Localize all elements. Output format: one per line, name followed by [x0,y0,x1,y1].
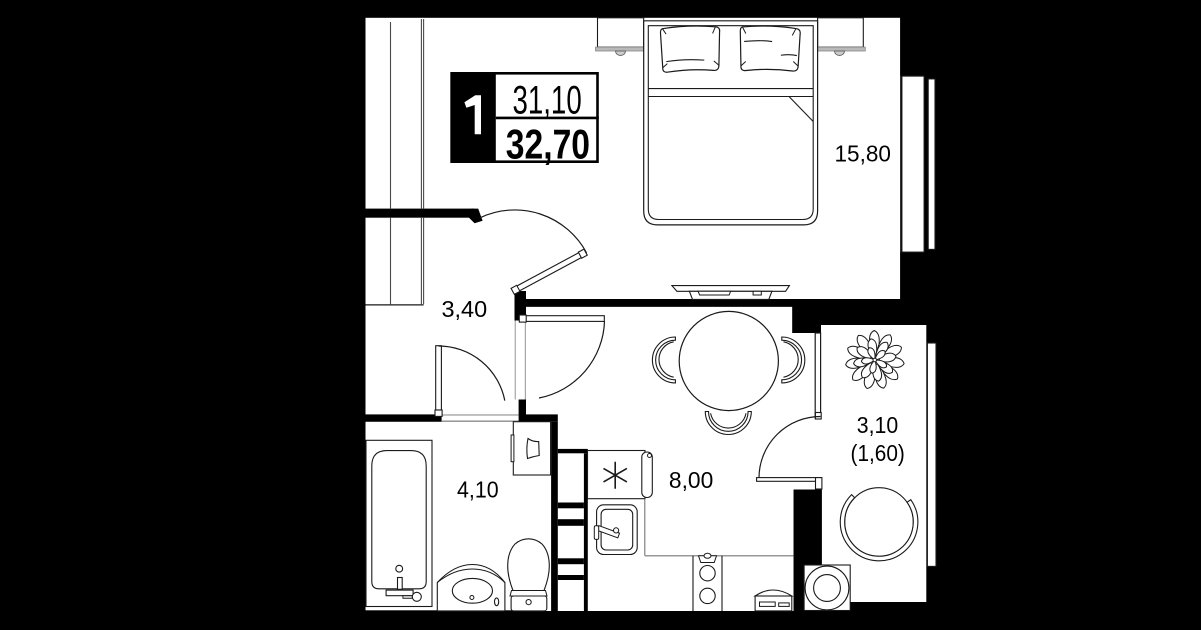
svg-text:3,10: 3,10 [857,412,898,438]
svg-text:31,10: 31,10 [513,78,582,122]
svg-text:32,70: 32,70 [506,120,590,167]
svg-text:(1,60): (1,60) [851,440,905,466]
svg-text:8,00: 8,00 [669,467,713,493]
svg-text:15,80: 15,80 [835,140,891,166]
svg-text:4,10: 4,10 [457,477,499,503]
svg-text:3,40: 3,40 [441,296,487,322]
